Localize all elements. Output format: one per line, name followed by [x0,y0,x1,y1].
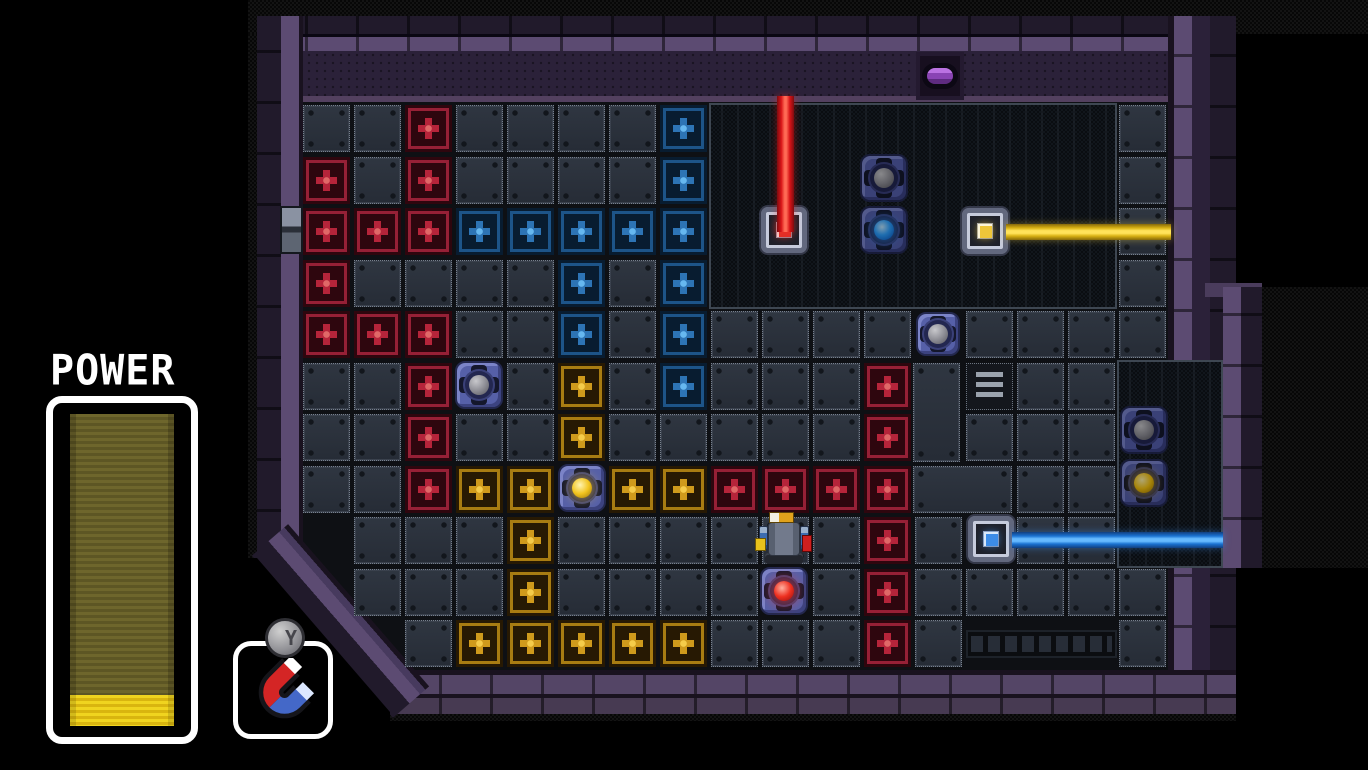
gold-cross-tile [507,517,554,564]
gold-cross-tile [609,620,656,667]
floor-tile [354,466,401,513]
floor-tile [354,363,401,410]
red-cross-tile [405,363,452,410]
floor-tile [303,466,350,513]
orb-disc [870,216,898,244]
yellow-orb [572,478,592,498]
floor-tile [456,260,503,307]
floor-tile [354,569,401,616]
red-cross-tile [303,157,350,204]
floor-tile [813,311,860,358]
orb-disc [770,577,798,605]
floor-tile [966,311,1013,358]
floor-tile [354,157,401,204]
floor-tile [609,260,656,307]
floor-tile [1119,311,1166,358]
gold-cross-tile [507,569,554,616]
gray-orb [469,375,489,395]
floor-tile [456,105,503,152]
blue-cross-tile [456,208,503,255]
floor-tile [966,569,1013,616]
floor-tile [660,517,707,564]
floor-tile [609,157,656,204]
red-cross-tile [303,311,350,358]
player-robot [755,508,813,566]
floor-tile [609,517,656,564]
orb-socket-gray-left [455,361,503,409]
blue-cross-tile [660,208,707,255]
floor-tile [558,569,605,616]
floor-tile [813,569,860,616]
red-cross-tile [405,157,452,204]
red-cross-tile [864,517,911,564]
red-cross-tile [405,414,452,461]
y-button-badge: Y [265,618,305,658]
laser-emitter-blue [966,514,1016,564]
orb-disc [870,164,898,192]
floor-tile [711,569,758,616]
orb-disc [465,371,493,399]
blue-orb [874,220,894,240]
blue-cross-tile [660,311,707,358]
floor-tile [354,414,401,461]
floor-tile [1017,363,1064,410]
orb-socket-gray-right [1120,406,1168,454]
red-cross-tile [354,208,401,255]
orb-disc [568,474,596,502]
floor-tile [711,414,758,461]
red-cross-tile [354,311,401,358]
top-wall-door [916,52,964,100]
blue-cross-tile [558,208,605,255]
floor-tile [507,260,554,307]
floor-tile [813,414,860,461]
power-meter-fill [70,695,174,726]
gold-cross-tile [507,466,554,513]
laser-core-blue [984,532,998,546]
floor-tile [1017,569,1064,616]
gold-cross-tile [660,620,707,667]
orb-socket-yellow-right [1120,459,1168,507]
red-cross-tile [864,363,911,410]
floor-tile [456,414,503,461]
floor-tile [1068,466,1115,513]
floor-tile [456,569,503,616]
red-cross-tile [303,260,350,307]
yellow-orb [1134,473,1154,493]
floor-tile [1119,260,1166,307]
gold-cross-tile [558,620,605,667]
floor-tile [1017,466,1064,513]
floor-tile [1017,414,1064,461]
blue-cross-tile [609,208,656,255]
gold-cross-tile [558,363,605,410]
floor-tile [507,105,554,152]
floor-tile [711,620,758,667]
floor-tile [507,311,554,358]
floor-tile [303,414,350,461]
gold-cross-tile [456,466,503,513]
floor-tile [456,157,503,204]
red-cross-tile [711,466,758,513]
gray-orb [928,324,948,344]
red-cross-tile [864,569,911,616]
floor-tile [405,260,452,307]
floor-tile [558,105,605,152]
channel-grate [966,630,1117,658]
red-orb [774,581,794,601]
floor-tile [711,517,758,564]
floor-tile [813,620,860,667]
floor-tile [660,569,707,616]
floor-tile [1119,105,1166,152]
left-wall-door [280,206,303,254]
red-cross-tile [405,311,452,358]
red-cross-tile [405,466,452,513]
floor-tile [762,363,809,410]
laser-core-yellow [978,224,992,238]
orb-disc [924,320,952,348]
floor-tile [1119,620,1166,667]
floor-tile [762,311,809,358]
yellow-laser-beam [1006,224,1171,240]
floor-tile [966,414,1013,461]
floor-tile [609,363,656,410]
floor-tile [303,363,350,410]
gray-orb [1134,420,1154,440]
floor-tile [609,105,656,152]
floor-tile [303,105,350,152]
red-cross-tile [303,208,350,255]
blue-laser-beam [1012,532,1223,548]
floor-tile [558,157,605,204]
blue-cross-tile [660,105,707,152]
orb-disc [1130,469,1158,497]
gray-orb [874,168,894,188]
metal-panel [913,363,960,462]
gold-cross-tile [558,414,605,461]
floor-tile [864,311,911,358]
floor-tile [1068,311,1115,358]
y-button-label: Y [285,621,297,655]
floor-tile [660,414,707,461]
red-cross-tile [864,414,911,461]
floor-tile [1068,363,1115,410]
floor-tile [915,620,962,667]
orb-disc [1130,416,1158,444]
door-light [927,68,953,84]
gold-cross-tile [660,466,707,513]
floor-tile [354,517,401,564]
gold-cross-tile [456,620,503,667]
red-cross-tile [405,208,452,255]
floor-tile [1068,569,1115,616]
floor-tile [558,517,605,564]
floor-tile [405,517,452,564]
floor-tile [813,517,860,564]
gold-cross-tile [507,620,554,667]
gold-cross-tile [609,466,656,513]
game-screen[interactable]: POWER Y [0,0,1368,770]
power-meter-track [70,414,174,726]
orb-socket-yellow-left [558,464,606,512]
laser-emitter-yellow [960,206,1010,256]
floor-tile [1119,157,1166,204]
blue-cross-tile [507,208,554,255]
blue-cross-tile [660,260,707,307]
red-cross-tile [813,466,860,513]
floor-tile [456,311,503,358]
orb-socket-gray-mid [916,312,960,356]
floor-tile [915,517,962,564]
power-meter [46,396,198,744]
floor-tile [762,414,809,461]
floor-tile [354,260,401,307]
magnet-icon [247,658,319,730]
floor-tile [354,105,401,152]
floor-tile [1119,569,1166,616]
floor-tile [609,311,656,358]
red-cross-tile [762,466,809,513]
floor-tile [507,363,554,410]
floor-tile [507,414,554,461]
floor-tile [405,569,452,616]
floor-tile [405,620,452,667]
power-label: POWER [50,347,210,395]
red-cross-tile [405,105,452,152]
blue-cross-tile [660,363,707,410]
floor-tile [609,414,656,461]
orb-socket-red [760,567,808,615]
floor-tile [813,363,860,410]
red-cross-tile [864,620,911,667]
floor-tile [1017,311,1064,358]
metal-panel [913,466,1012,513]
blue-cross-tile [660,157,707,204]
red-laser-beam [777,96,794,232]
floor-tile [915,569,962,616]
floor-tile [762,620,809,667]
floor-tile [711,363,758,410]
floor-tile [1068,414,1115,461]
blue-cross-tile [558,311,605,358]
red-cross-tile [864,466,911,513]
floor-tile [609,569,656,616]
orb-socket-gray-pit [860,154,908,202]
orb-socket-blue-pit [860,206,908,254]
blue-cross-tile [558,260,605,307]
floor-tile [456,517,503,564]
floor-tile [711,311,758,358]
vent-grate [966,363,1013,410]
floor-tile [507,157,554,204]
